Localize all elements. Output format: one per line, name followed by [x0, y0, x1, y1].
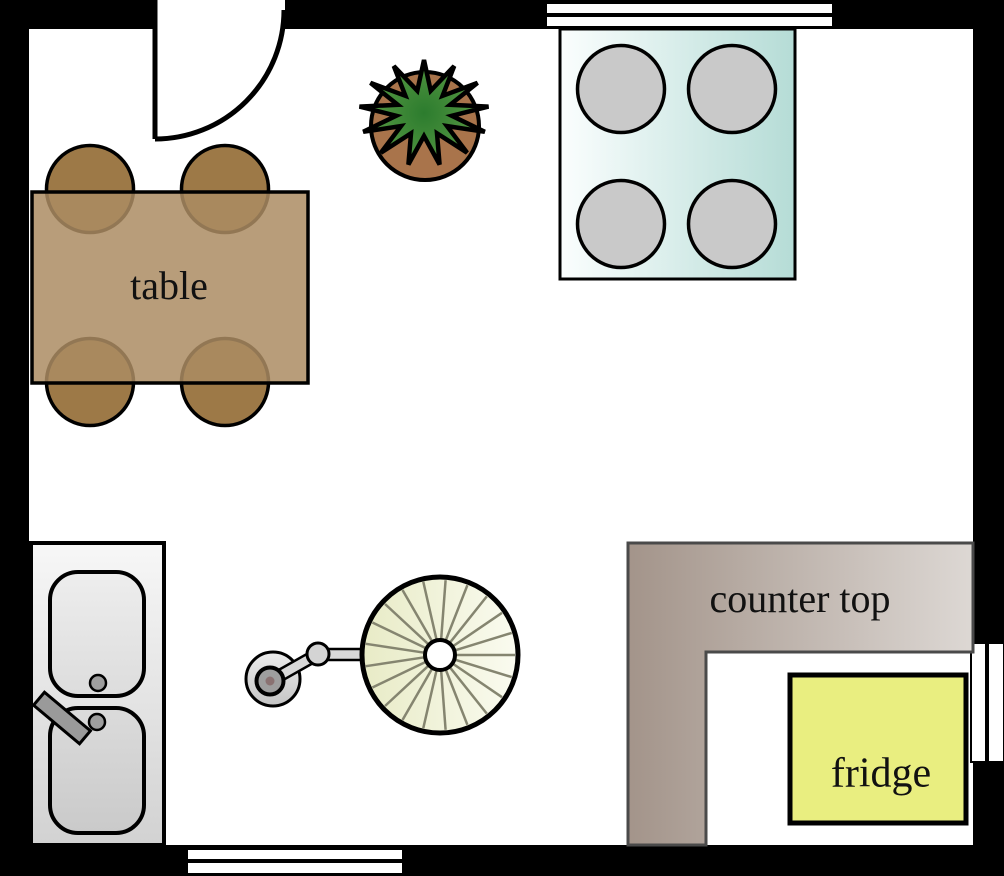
fridge-body [790, 675, 966, 823]
drain [90, 675, 106, 691]
sink [31, 543, 164, 845]
burner [689, 181, 776, 268]
stove [560, 29, 795, 279]
burner [689, 46, 776, 133]
window-top [546, 3, 833, 27]
fridge: fridge [790, 675, 966, 823]
table-label: table [130, 263, 208, 308]
kitchen-floor-plan: table counter top fridge [0, 0, 1004, 876]
fan-base-dot [266, 677, 275, 686]
fan-arm-joint [307, 643, 329, 665]
burner [578, 181, 665, 268]
fan-hub [425, 640, 455, 670]
burner [578, 46, 665, 133]
wall-left [0, 0, 29, 876]
fridge-label: fridge [831, 751, 931, 797]
wall-bottom [0, 845, 1004, 876]
window-right [971, 643, 1004, 762]
window-bottom [187, 849, 403, 874]
counter-top-label: counter top [709, 576, 890, 621]
drain [89, 714, 105, 730]
wall-top [0, 0, 1004, 29]
